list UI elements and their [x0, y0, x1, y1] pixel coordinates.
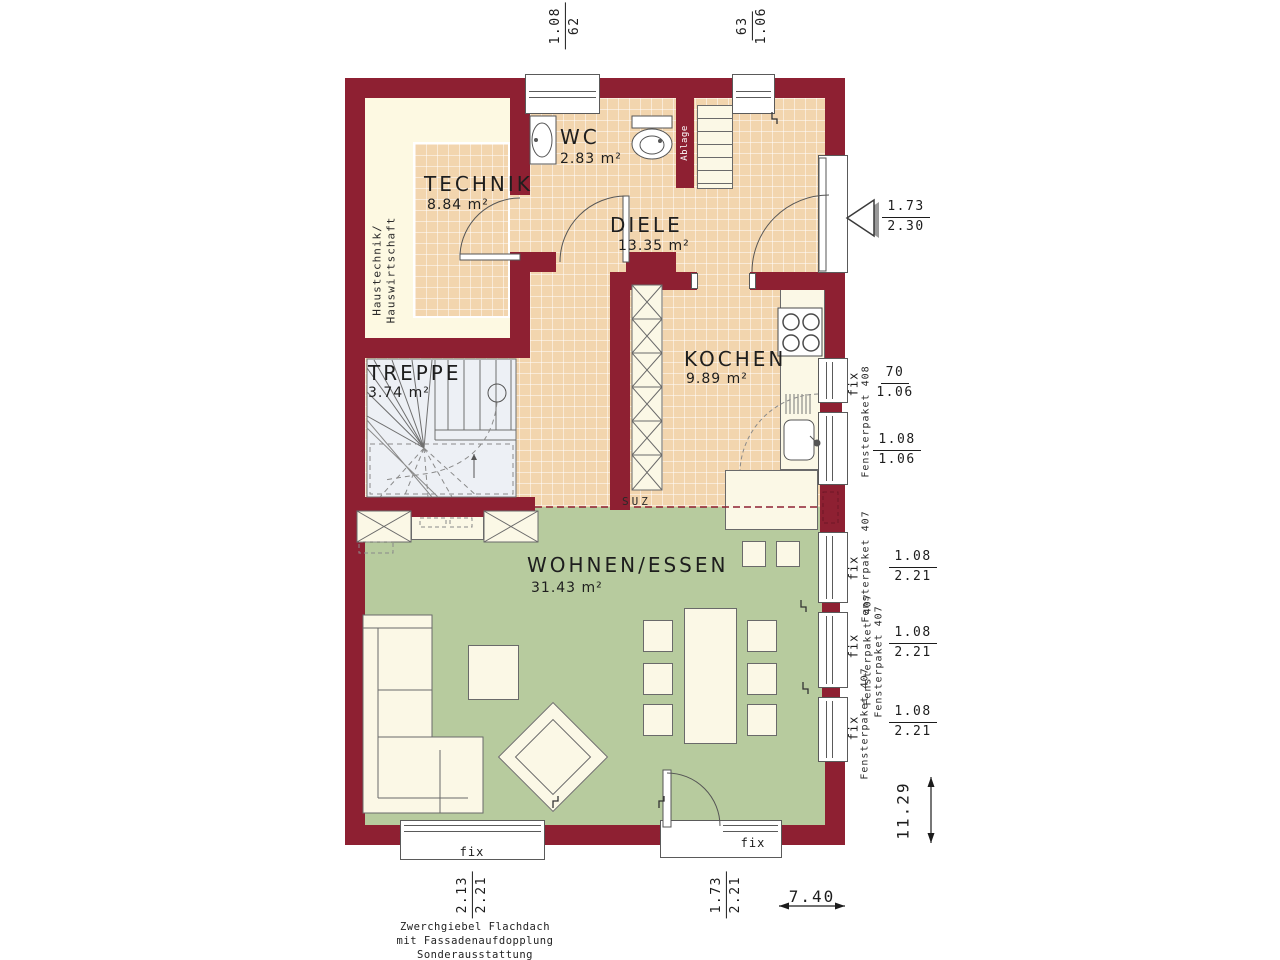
- room-label-treppe: TREPPE: [368, 361, 462, 385]
- door-entrance: [752, 158, 829, 272]
- dim-kitchen-window-2: 1.08 1.06: [873, 432, 920, 468]
- dim-value: 1.08: [889, 704, 936, 722]
- window-fix-label: fix: [846, 372, 860, 397]
- window-fix-label: fix: [846, 634, 860, 659]
- window-fix-label: fix: [460, 845, 485, 859]
- room-label-diele: DIELE: [610, 213, 683, 237]
- room-label-wc: WC: [560, 125, 600, 149]
- room-label-kochen: KOCHEN: [684, 347, 786, 371]
- fensterpaket-407-label: Fensterpaket 407: [860, 667, 871, 779]
- dim-top-left: 1.08 62: [548, 2, 584, 49]
- dim-bottom-door: 1.73 2.21: [709, 871, 745, 918]
- height-dimension-arrow: [928, 777, 935, 843]
- dim-value: 1.06: [873, 451, 920, 468]
- dim-entrance: 1.73 2.30: [882, 199, 929, 235]
- kitchen-sink: [784, 394, 820, 460]
- dim-kitchen-window-1: 70 1.06: [871, 365, 918, 401]
- sideboard: [357, 511, 538, 553]
- window-fix-label: fix: [846, 556, 860, 581]
- kitchen-tall-cabinet: [632, 285, 662, 490]
- room-area-treppe: 3.74 m²: [368, 385, 430, 401]
- ablage-label: Ablage: [680, 125, 690, 161]
- door-terrace: [663, 770, 720, 827]
- room-area-kochen: 9.89 m²: [686, 371, 748, 387]
- room-area-wc: 2.83 m²: [560, 151, 622, 167]
- dim-value: 1.73: [709, 871, 727, 918]
- dim-value: 2.21: [728, 871, 745, 918]
- pier-dashed-detail: [823, 492, 838, 523]
- dim-value: 1.08: [548, 2, 566, 49]
- footer-line2: mit Fassadenaufdopplung: [395, 934, 555, 948]
- washbasin: [530, 116, 556, 164]
- fensterpaket-407-label: Fensterpaket 407: [874, 605, 885, 717]
- dim-value: 1.73: [882, 199, 929, 217]
- dim-living-window-3: 1.08 2.21: [889, 704, 936, 740]
- dim-bottom-left: 2.13 2.21: [455, 871, 491, 918]
- sofa: [363, 615, 483, 813]
- dim-value: 2.13: [455, 871, 473, 918]
- dim-value: 2.30: [882, 218, 929, 235]
- dim-value: 1.06: [871, 384, 918, 401]
- dim-value: 1.08: [889, 625, 936, 643]
- plan-linework: [0, 0, 1280, 960]
- dim-total-width: 7.40: [789, 887, 836, 906]
- room-area-wohnen: 31.43 m²: [531, 580, 603, 596]
- haustechnik-line2: Hauswirtschaft: [384, 217, 397, 324]
- suz-label: SUZ: [622, 495, 651, 508]
- dim-value: 2.21: [889, 644, 936, 661]
- dim-top-right: 63 1.06: [735, 2, 771, 49]
- fensterpaket-408-label: Fensterpaket 408: [861, 365, 872, 477]
- room-label-wohnen: WOHNEN/ESSEN: [527, 553, 728, 577]
- dim-living-window-1: 1.08 2.21: [889, 549, 936, 585]
- room-area-technik: 8.84 m²: [427, 197, 489, 213]
- dim-value: 63: [735, 12, 753, 41]
- floorplan-page: fix: [0, 0, 1280, 960]
- dim-value: 70: [881, 365, 910, 383]
- haustechnik-line1: Haustechnik/: [370, 224, 383, 315]
- room-label-technik: TECHNIK: [424, 172, 533, 196]
- entrance-marker-icon: [847, 200, 879, 238]
- footer-line1: Zwerchgiebel Flachdach: [395, 920, 555, 934]
- dim-value: 1.08: [889, 549, 936, 567]
- dim-living-window-2: 1.08 2.21: [889, 625, 936, 661]
- dim-value: 1.08: [873, 432, 920, 450]
- dim-value: 1.06: [754, 2, 771, 49]
- dim-value: 62: [567, 12, 584, 41]
- toilet: [632, 116, 672, 159]
- haustechnik-note: Haustechnik/ Hauswirtschaft: [370, 217, 398, 324]
- window-fix-label: fix: [846, 716, 860, 741]
- dim-total-height: 11.29: [894, 781, 913, 839]
- dim-value: 2.21: [889, 568, 936, 585]
- dim-value: 2.21: [889, 723, 936, 740]
- footer-line3: Sonderausstattung: [395, 948, 555, 960]
- dim-value: 2.21: [474, 871, 491, 918]
- plan-footer-note: Zwerchgiebel Flachdach mit Fassadenaufdo…: [395, 920, 555, 960]
- room-area-diele: 13.35 m²: [618, 238, 690, 254]
